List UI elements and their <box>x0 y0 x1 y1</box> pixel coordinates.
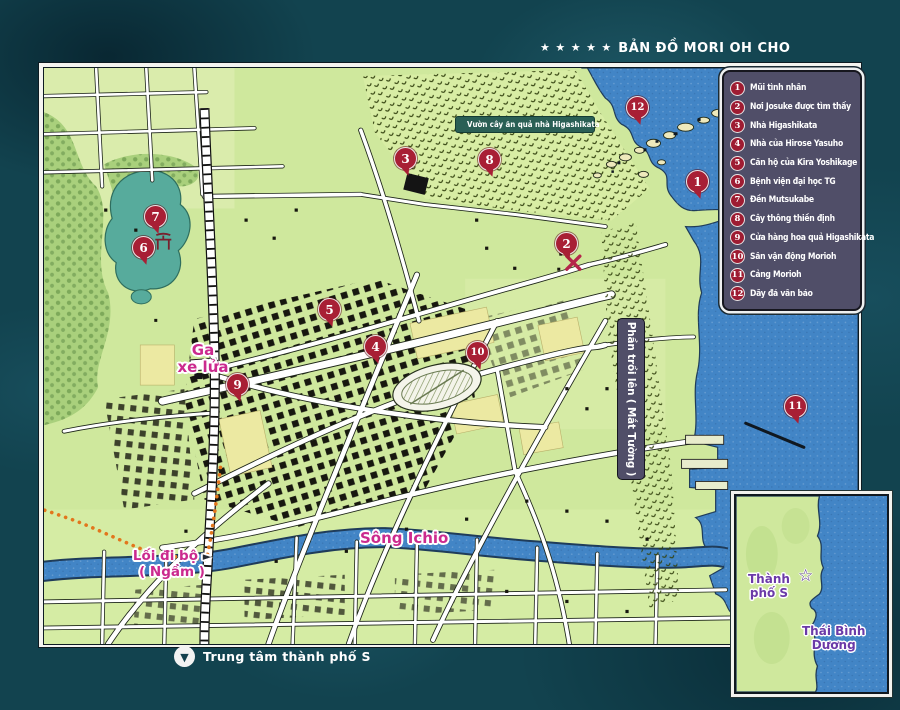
legend-num: 1 <box>730 81 745 96</box>
legend-num: 6 <box>730 174 745 189</box>
legend-item-12: 12Dãy đá vân báo <box>730 285 860 304</box>
map-marker-1[interactable]: 1 <box>686 170 709 193</box>
legend-num: 4 <box>730 137 745 152</box>
morioh-map-page: ★ ★ ★ ★ ★BẢN ĐỒ MORI OH CHO <box>0 0 900 710</box>
city-star-icon: ☆ <box>798 566 813 586</box>
inset-map: ☆ Thành phố S Thái Bình Dương <box>730 490 893 698</box>
legend-label: Mũi tình nhân <box>750 83 806 93</box>
footer-caption: ▼ Trung tâm thành phố S <box>174 646 371 667</box>
walkway-arrow-icon: ► <box>203 550 211 563</box>
legend-item-10: 10Sân vận động Morioh <box>730 247 860 266</box>
legend-label: Dãy đá vân báo <box>750 289 813 299</box>
map-marker-2[interactable]: 2 <box>555 232 578 255</box>
legend-item-2: 2Nơi Josuke được tìm thấy <box>730 98 860 117</box>
marker-number: 8 <box>485 154 493 166</box>
legend-label: Sân vận động Morioh <box>750 252 836 262</box>
legend-num: 3 <box>730 118 745 133</box>
legend-num: 11 <box>730 268 745 283</box>
down-circle-icon: ▼ <box>174 646 195 667</box>
legend-item-9: 9Cửa hàng hoa quả Higashikata <box>730 229 860 248</box>
legend-num: 5 <box>730 156 745 171</box>
map-title-text: BẢN ĐỒ MORI OH CHO <box>618 41 790 56</box>
marker-number: 12 <box>631 103 645 113</box>
page-title: ★ ★ ★ ★ ★BẢN ĐỒ MORI OH CHO <box>540 37 770 56</box>
marker-number: 3 <box>401 153 409 165</box>
legend-num: 2 <box>730 100 745 115</box>
legend-item-5: 5Căn hộ của Kira Yoshikage <box>730 154 860 173</box>
legend-label: Đền Mutsukabe <box>750 195 814 205</box>
legend-label: Bệnh viện đại học TG <box>750 177 835 187</box>
wall-eyes-label: Phần trồi lên ( Mắt Tường ) <box>625 322 637 476</box>
map-marker-12[interactable]: 12 <box>626 96 649 119</box>
legend-num: 7 <box>730 193 745 208</box>
map-marker-3[interactable]: 3 <box>394 147 417 170</box>
orchard-label: Vườn cây ăn quả nhà Higashikata <box>467 120 599 129</box>
river-label: Sông Ichio <box>360 530 448 547</box>
walkway-label: Lối đi bộ ► ( Ngầm ) <box>126 549 218 580</box>
legend-item-6: 6Bệnh viện đại học TG <box>730 172 860 191</box>
map-marker-8[interactable]: 8 <box>478 148 501 171</box>
legend-item-7: 7Đền Mutsukabe <box>730 191 860 210</box>
marker-number: 2 <box>562 238 570 250</box>
marker-number: 5 <box>325 304 333 316</box>
inset-city-label: Thành phố S <box>748 572 790 601</box>
orchard-label-badge: Vườn cây ăn quả nhà Higashikata <box>455 116 595 133</box>
map-marker-9[interactable]: 9 <box>226 373 249 396</box>
legend-num: 8 <box>730 212 745 227</box>
map-marker-4[interactable]: 4 <box>364 335 387 358</box>
legend-label: Nhà của Hirose Yasuho <box>750 139 843 149</box>
legend-label: Nhà Higashikata <box>750 121 817 131</box>
legend-panel: 1Mũi tình nhân 2Nơi Josuke được tìm thấy… <box>722 70 862 311</box>
marker-number: 4 <box>371 341 379 353</box>
map-marker-5[interactable]: 5 <box>318 298 341 321</box>
map-marker-11[interactable]: 11 <box>784 395 807 418</box>
inset-ocean-label: Thái Bình Dương <box>802 624 865 653</box>
legend-item-8: 8Cây thông thiền định <box>730 210 860 229</box>
map-marker-10[interactable]: 10 <box>466 341 489 364</box>
inset-canvas: ☆ Thành phố S Thái Bình Dương <box>734 494 889 694</box>
marker-number: 7 <box>151 211 159 223</box>
wall-eyes-badge: Phần trồi lên ( Mắt Tường ) <box>617 318 645 480</box>
legend-item-3: 3Nhà Higashikata <box>730 116 860 135</box>
marker-number: 1 <box>693 176 701 188</box>
legend-num: 10 <box>730 249 745 264</box>
legend-item-4: 4Nhà của Hirose Yasuho <box>730 135 860 154</box>
legend-label: Cửa hàng hoa quả Higashikata <box>750 233 874 243</box>
rating-stars-icon: ★ ★ ★ ★ ★ <box>540 41 612 54</box>
legend-num: 12 <box>730 286 745 301</box>
legend-num: 9 <box>730 230 745 245</box>
legend-item-1: 1Mũi tình nhân <box>730 79 860 98</box>
legend-item-11: 11Cảng Morioh <box>730 266 860 285</box>
legend-label: Nơi Josuke được tìm thấy <box>750 102 851 112</box>
marker-number: 6 <box>139 242 147 254</box>
legend-label: Căn hộ của Kira Yoshikage <box>750 158 857 168</box>
map-marker-7[interactable]: 7 <box>144 205 167 228</box>
map-marker-6[interactable]: 6 <box>132 236 155 259</box>
footer-text: Trung tâm thành phố S <box>203 649 371 664</box>
legend-label: Cây thông thiền định <box>750 214 835 224</box>
marker-number: 9 <box>233 379 241 391</box>
legend-label: Cảng Morioh <box>750 270 801 280</box>
marker-number: 10 <box>471 348 485 358</box>
marker-number: 11 <box>789 402 803 412</box>
station-label: Ga xe lửa <box>168 342 238 377</box>
